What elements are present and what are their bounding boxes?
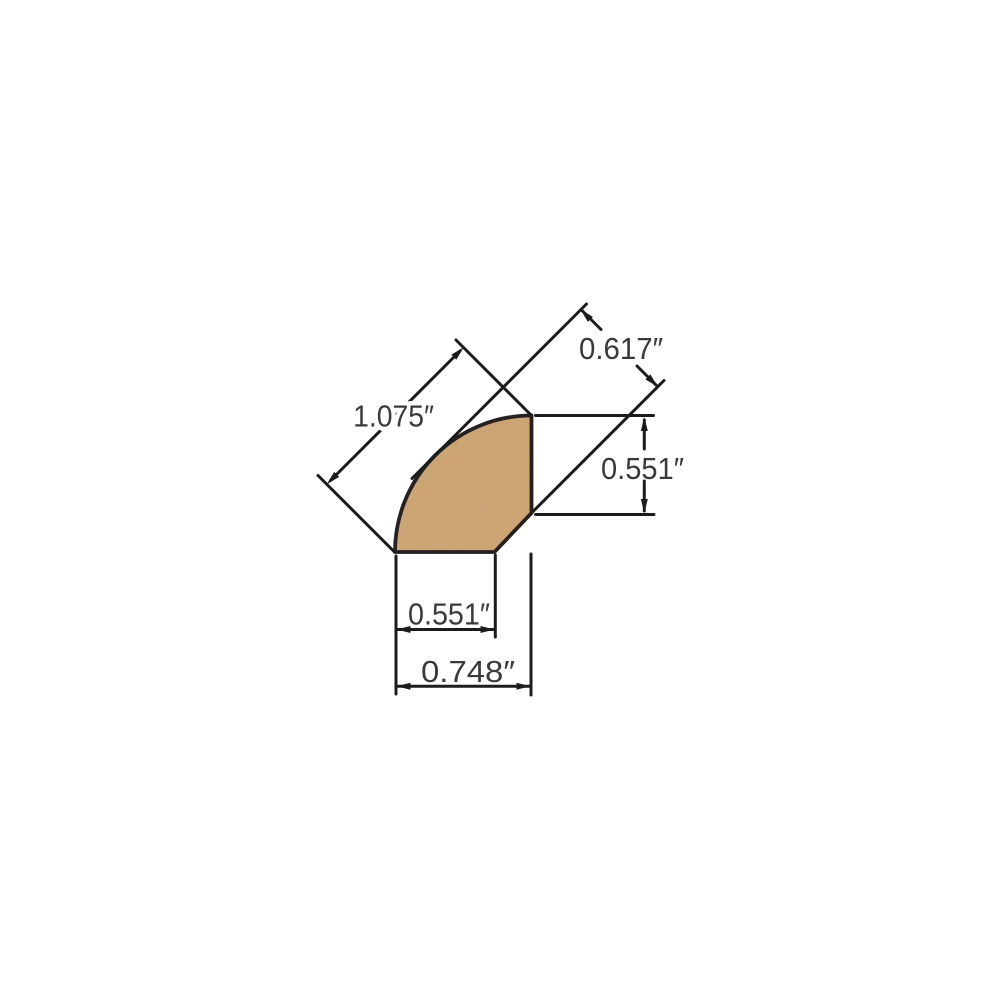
svg-text:0.551″: 0.551″ xyxy=(408,598,490,632)
svg-text:1.075″: 1.075″ xyxy=(353,400,434,434)
svg-text:0.617″: 0.617″ xyxy=(579,332,663,366)
svg-text:0.748″: 0.748″ xyxy=(421,655,515,689)
svg-text:0.551″: 0.551″ xyxy=(601,452,684,486)
